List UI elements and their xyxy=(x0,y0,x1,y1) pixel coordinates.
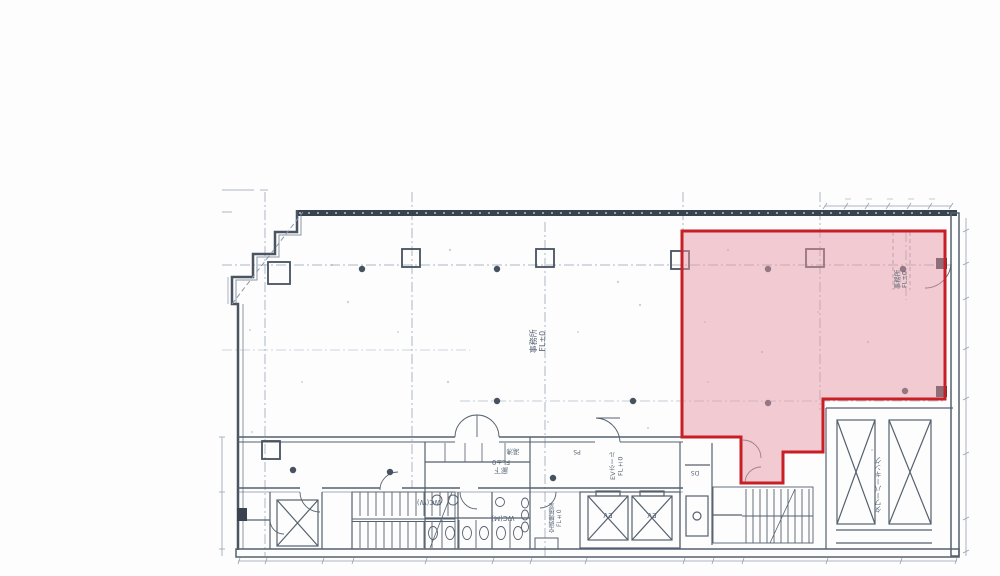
room-label-parking: タワーパーキング xyxy=(874,440,882,530)
room-partitions xyxy=(238,408,953,549)
label-ev-right: EV xyxy=(644,511,660,519)
room-label-wc-m: WC(M) xyxy=(488,514,518,522)
room-label-office: 事務所FL±0 xyxy=(529,319,547,363)
room-label-office-highlight: 事務所FL±0 xyxy=(895,261,910,297)
room-label-wc-w: WC(W) xyxy=(414,498,444,506)
shafts xyxy=(277,420,931,546)
floor-plan-scan: 事務所FL±0 事務所FL±0 廊下FL±0 EVホールFL±0 空調機械室FL… xyxy=(0,0,1000,576)
room-label-ev-hall: EVホールFL±0 xyxy=(610,444,625,488)
room-label-corridor: 廊下FL±0 xyxy=(486,458,516,474)
floor-plan-drawing xyxy=(0,0,1000,576)
label-ev-left: EV xyxy=(600,511,616,519)
room-label-ac-room: 空調機械室FL±0 xyxy=(550,496,564,540)
label-ps: PS xyxy=(570,447,584,454)
label-ds: DS xyxy=(688,468,702,475)
room-label-yuwakashi: 湯沸 xyxy=(502,447,524,454)
